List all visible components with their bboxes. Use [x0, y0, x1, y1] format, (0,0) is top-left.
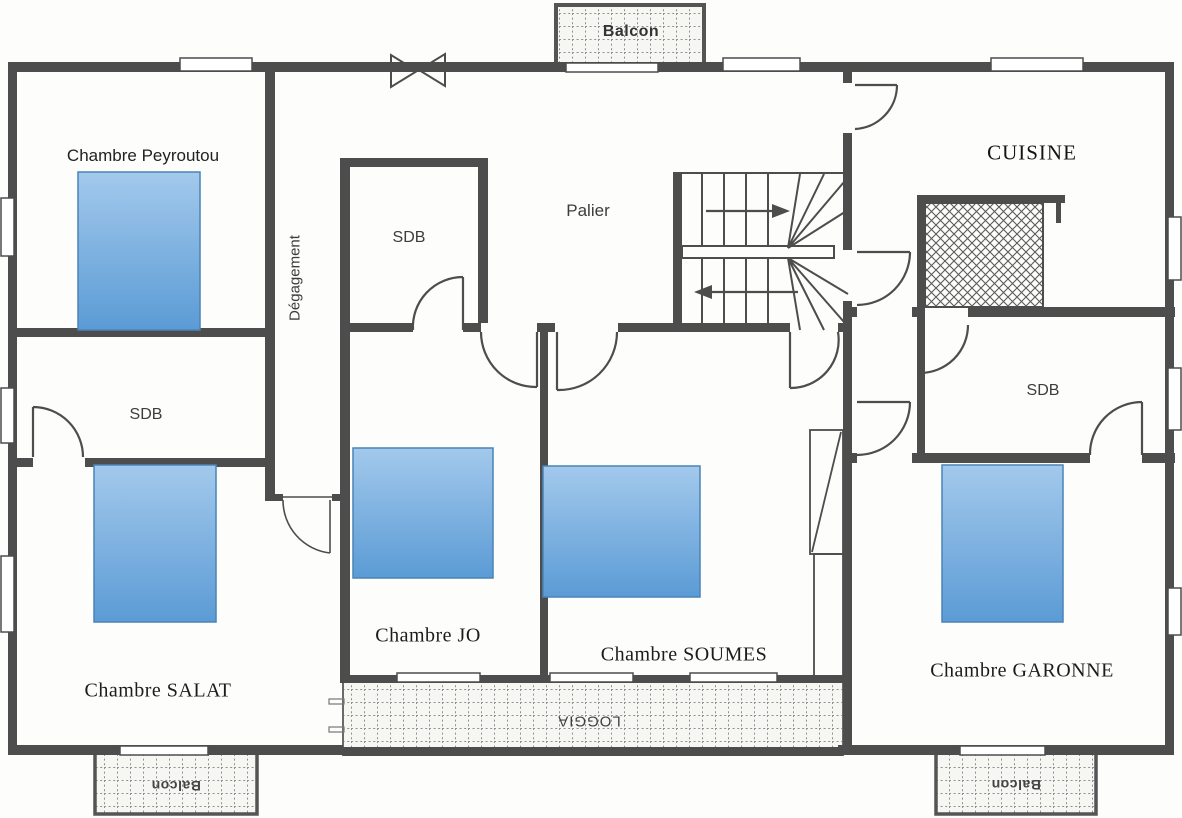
beds — [78, 172, 1063, 622]
label-balcon-bottom-right: Balcon — [991, 777, 1041, 793]
room-label-sdb-center: SDB — [393, 229, 426, 247]
bed-soumes — [543, 466, 700, 597]
room-label-soumes: Chambre SOUMES — [601, 644, 767, 667]
bed-peyroutou — [78, 172, 200, 330]
label-loggia: LOGGIA — [557, 713, 621, 730]
room-label-jo: Chambre JO — [375, 625, 481, 648]
room-label-garonne: Chambre GARONNE — [930, 660, 1114, 683]
floor-plan: Chambre Peyroutou Palier SDB Dégagement … — [0, 0, 1182, 818]
bed-salat — [94, 465, 216, 622]
room-label-degagement: Dégagement — [287, 235, 304, 321]
room-label-peyroutou: Chambre Peyroutou — [67, 146, 219, 166]
closet-strip — [810, 430, 843, 677]
staircase — [676, 173, 848, 330]
label-balcon-top: Balcon — [603, 23, 659, 41]
bed-garonne — [942, 465, 1063, 622]
label-balcon-bottom-left: Balcon — [151, 778, 201, 794]
room-label-cuisine: CUISINE — [987, 141, 1077, 166]
room-label-sdb-left: SDB — [130, 406, 163, 424]
room-label-palier: Palier — [566, 201, 609, 221]
room-label-salat: Chambre SALAT — [84, 680, 231, 703]
shower-area — [925, 203, 1043, 307]
bed-jo — [353, 448, 493, 578]
room-label-sdb-right: SDB — [1027, 382, 1060, 400]
